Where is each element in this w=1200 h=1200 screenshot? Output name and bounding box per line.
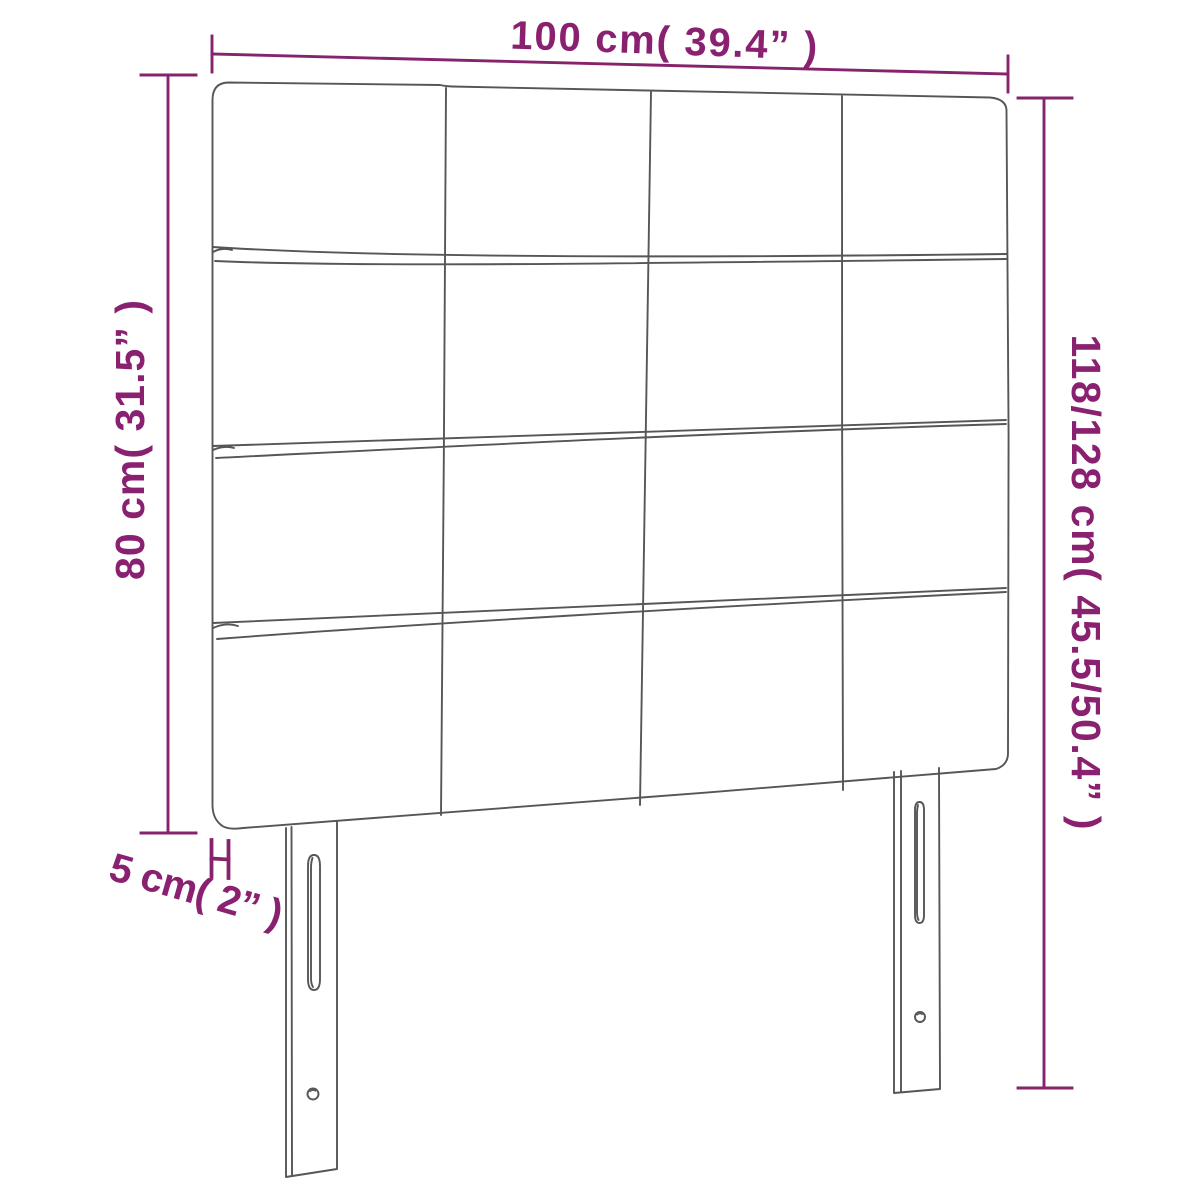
svg-text:80 cm( 31.5” ): 80 cm( 31.5” ) bbox=[107, 300, 153, 580]
